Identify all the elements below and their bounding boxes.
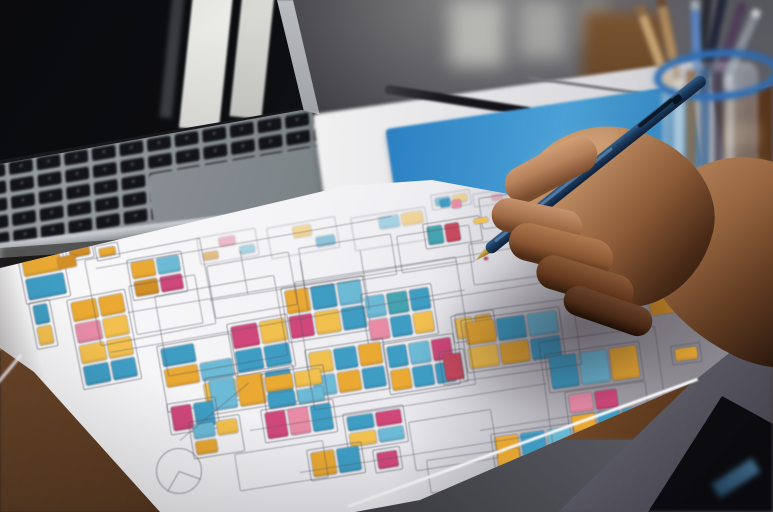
hand-holding-pen [0, 0, 773, 512]
photo-scene [0, 0, 773, 512]
